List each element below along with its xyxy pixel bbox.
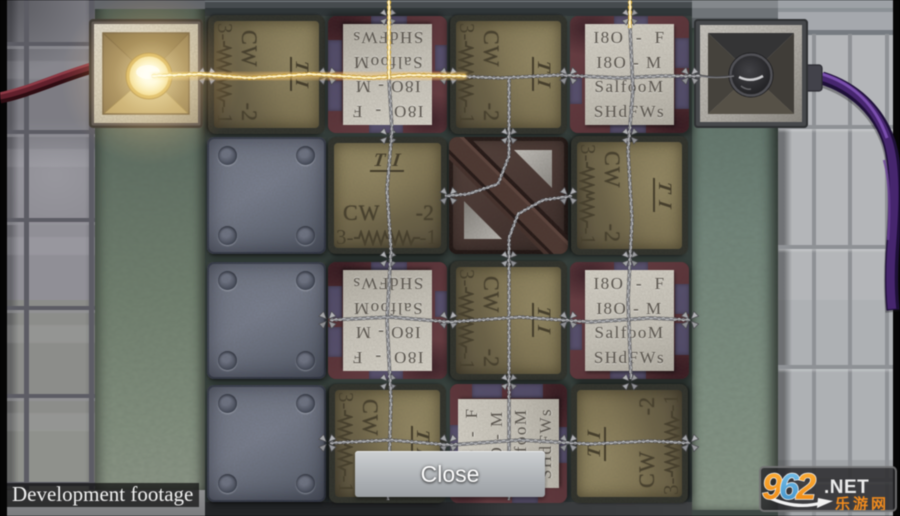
svg-text:乐游网: 乐游网 xyxy=(835,495,889,510)
svg-text:.NET: .NET xyxy=(824,477,869,498)
svg-text:962: 962 xyxy=(762,468,816,507)
